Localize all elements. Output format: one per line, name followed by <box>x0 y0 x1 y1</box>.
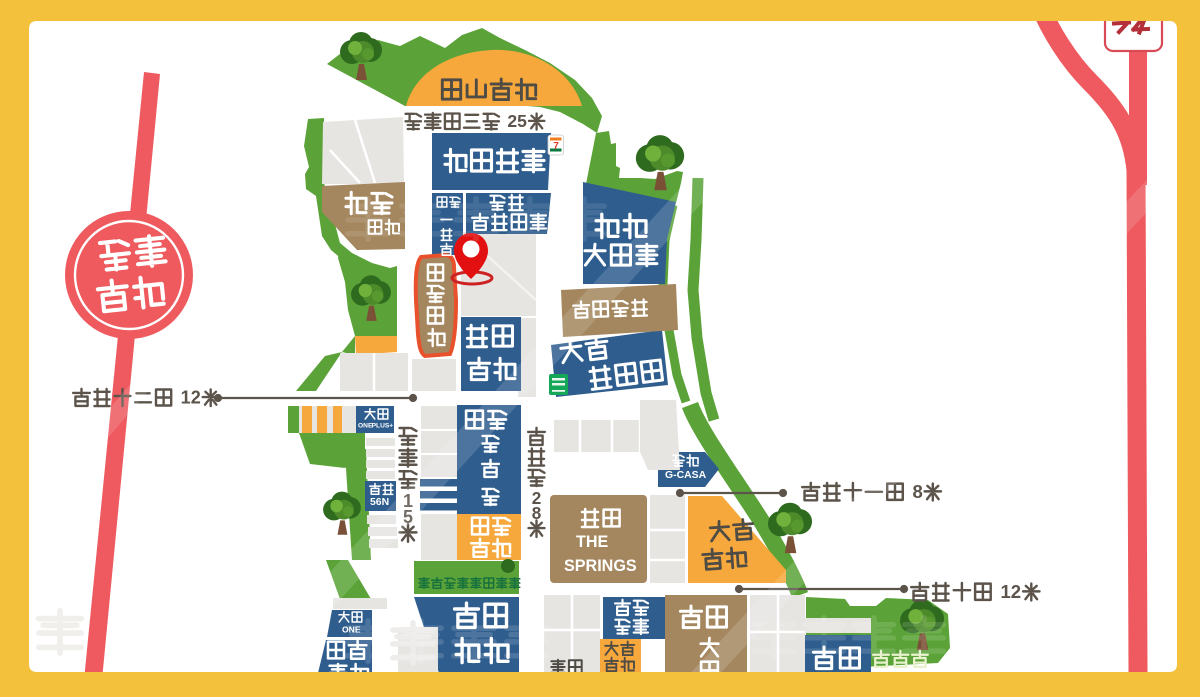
svg-text:25: 25 <box>507 111 527 131</box>
svg-text:SPRINGS: SPRINGS <box>564 557 637 575</box>
svg-text:PLUS+: PLUS+ <box>372 423 394 430</box>
svg-text:7: 7 <box>553 141 559 152</box>
svg-text:THE: THE <box>576 533 609 551</box>
svg-text:G-CASA: G-CASA <box>665 470 707 481</box>
svg-text:12: 12 <box>1000 581 1021 602</box>
svg-text:12: 12 <box>181 388 201 408</box>
svg-text:56N: 56N <box>370 497 389 508</box>
svg-text:8: 8 <box>913 481 923 502</box>
